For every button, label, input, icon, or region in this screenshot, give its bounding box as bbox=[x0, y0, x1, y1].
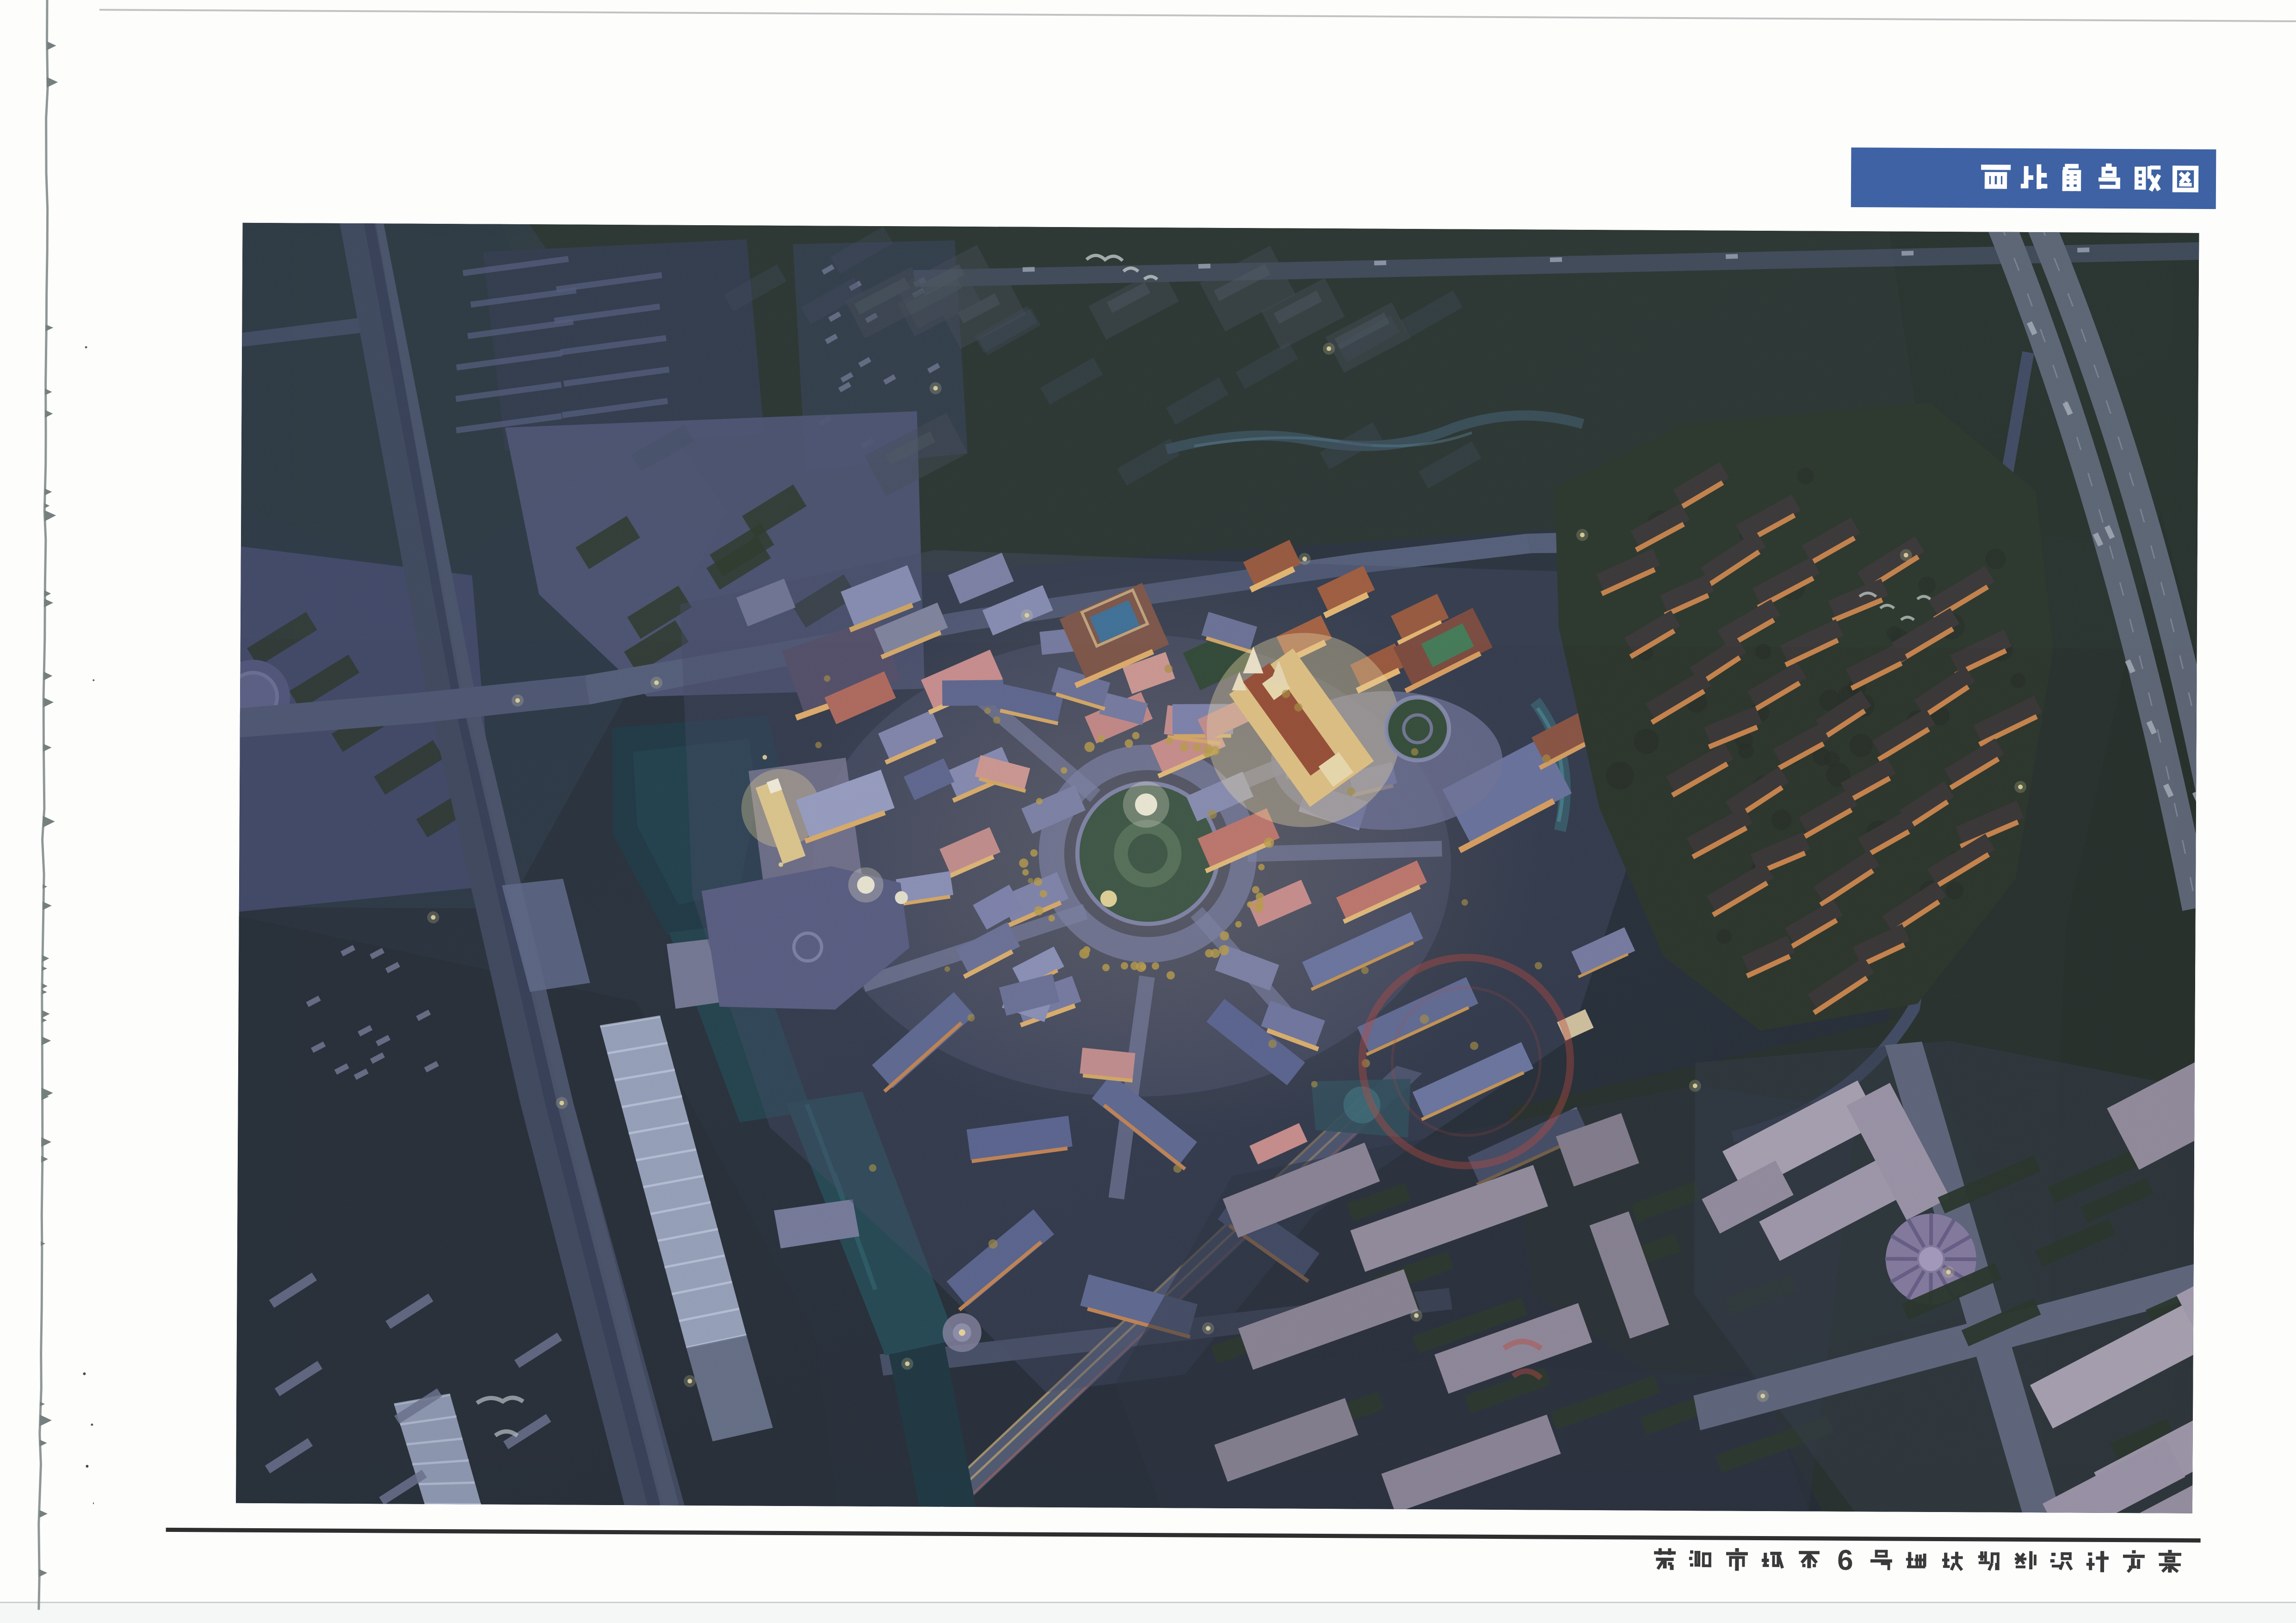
svg-text:6: 6 bbox=[1837, 1544, 1853, 1576]
